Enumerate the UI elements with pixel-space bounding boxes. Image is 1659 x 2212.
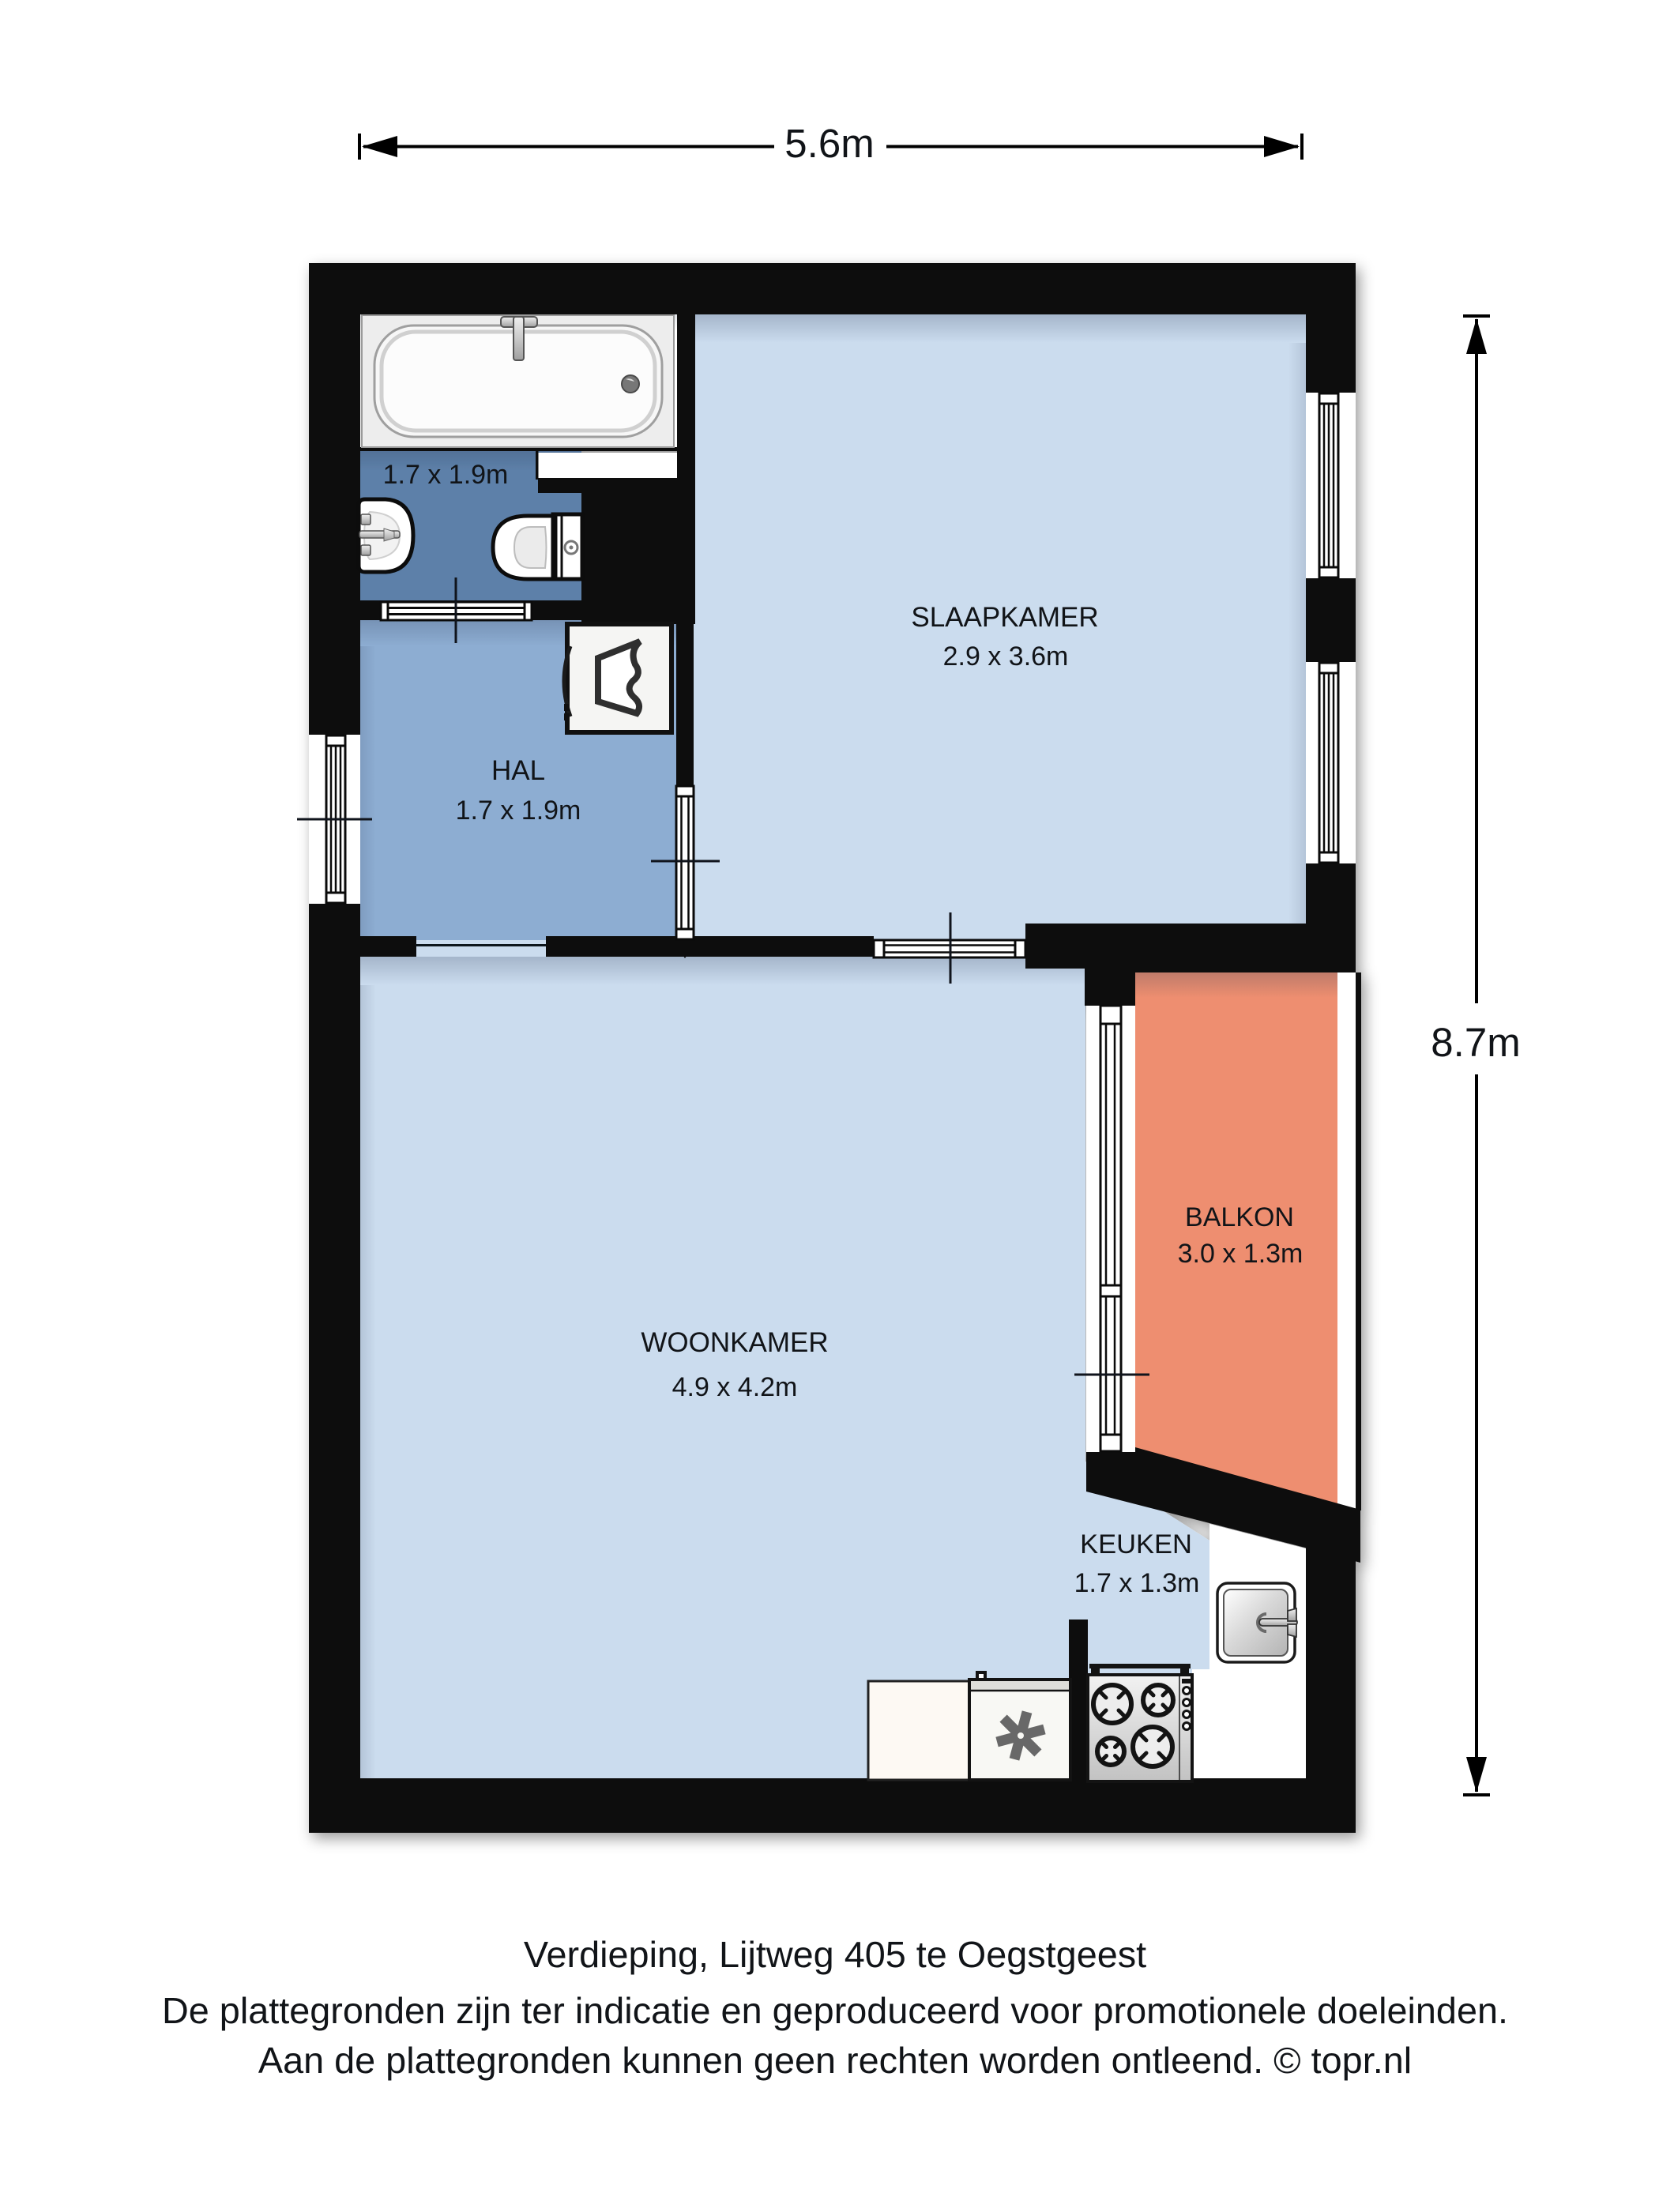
svg-text:De plattegronden zijn ter indi: De plattegronden zijn ter indicatie en g… <box>162 1990 1508 2031</box>
svg-text:1.7 x 1.3m: 1.7 x 1.3m <box>1074 1568 1200 1598</box>
svg-text:8.7m: 8.7m <box>1431 1020 1520 1065</box>
svg-text:Verdieping, Lijtweg 405 te Oeg: Verdieping, Lijtweg 405 te Oegstgeest <box>524 1934 1146 1975</box>
svg-text:WOONKAMER: WOONKAMER <box>641 1327 828 1358</box>
svg-text:3.0 x 1.3m: 3.0 x 1.3m <box>1178 1239 1303 1269</box>
svg-text:Aan de plattegronden kunnen ge: Aan de plattegronden kunnen geen rechten… <box>258 2040 1412 2081</box>
svg-text:1.7 x 1.9m: 1.7 x 1.9m <box>456 796 581 826</box>
svg-text:4.9 x 4.2m: 4.9 x 4.2m <box>672 1372 798 1402</box>
svg-text:BALKON: BALKON <box>1185 1202 1294 1232</box>
svg-text:1.7 x 1.9m: 1.7 x 1.9m <box>383 460 509 490</box>
svg-text:5.6m: 5.6m <box>784 121 874 166</box>
svg-text:SLAAPKAMER: SLAAPKAMER <box>911 602 1098 633</box>
svg-text:KEUKEN: KEUKEN <box>1080 1529 1192 1559</box>
svg-text:2.9 x 3.6m: 2.9 x 3.6m <box>943 641 1069 671</box>
svg-text:HAL: HAL <box>491 755 545 786</box>
